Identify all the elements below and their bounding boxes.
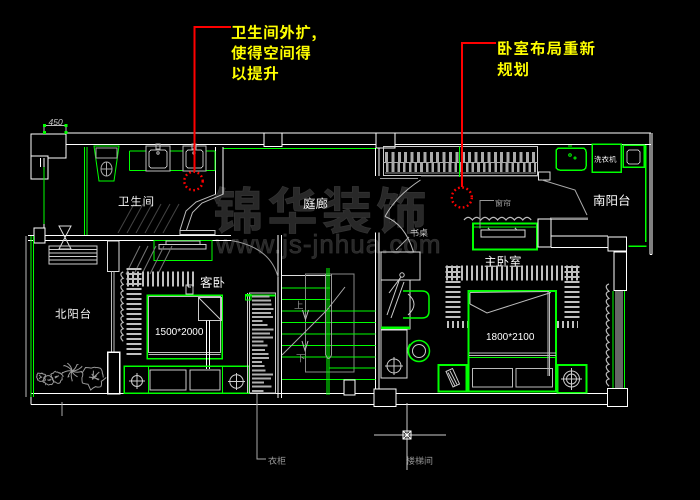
svg-text:1500*2000: 1500*2000	[155, 327, 204, 338]
svg-text:1800*2100: 1800*2100	[486, 332, 535, 343]
svg-text:www.js-jnhua.com: www.js-jnhua.com	[215, 229, 442, 259]
